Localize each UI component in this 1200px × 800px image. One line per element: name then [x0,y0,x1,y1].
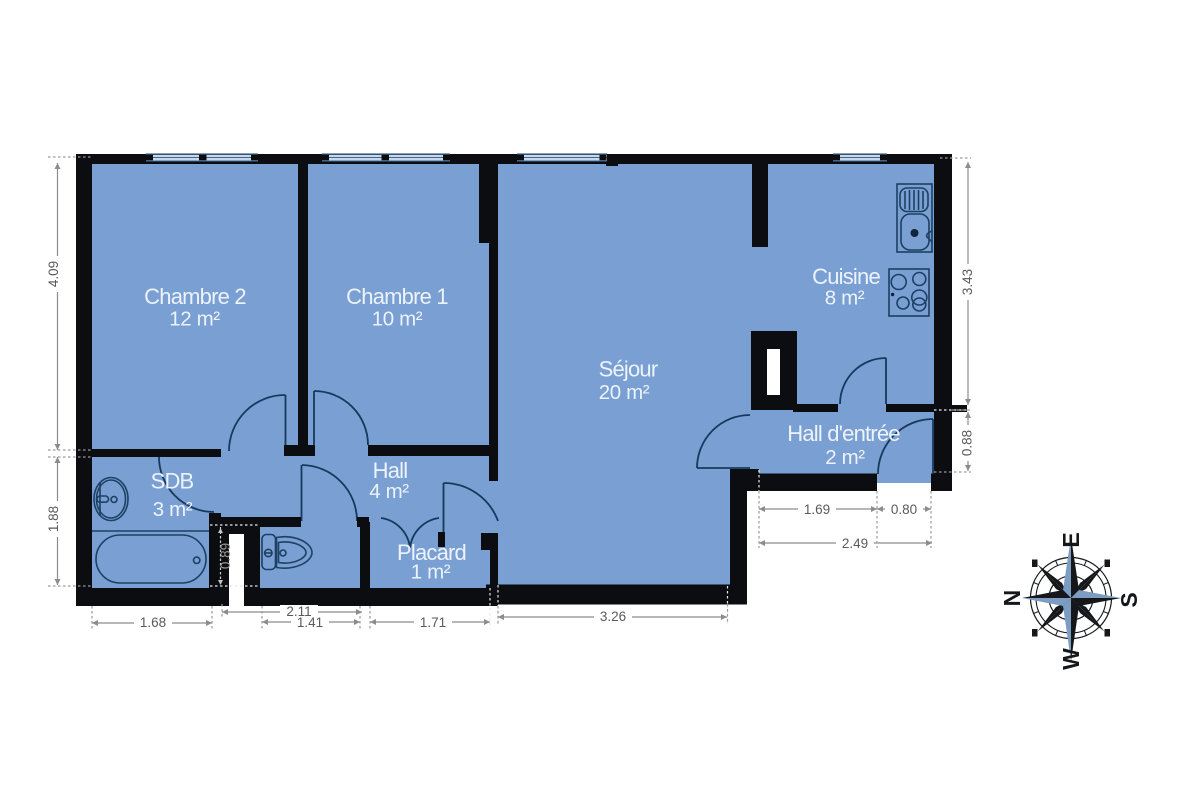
svg-text:1.68: 1.68 [140,615,166,630]
svg-text:S: S [1116,592,1142,607]
svg-text:0.88: 0.88 [960,430,975,456]
svg-text:Chambre 2: Chambre 2 [144,284,246,309]
svg-text:SDB: SDB [151,469,194,494]
svg-text:8 m²: 8 m² [825,287,865,310]
svg-text:E: E [1058,532,1084,547]
svg-text:1 m²: 1 m² [411,561,451,584]
svg-text:0.80: 0.80 [891,502,917,517]
svg-text:2.49: 2.49 [842,536,868,551]
svg-text:4.09: 4.09 [46,261,61,287]
svg-text:3.26: 3.26 [600,609,626,624]
svg-text:N: N [999,590,1025,607]
svg-text:2 m²: 2 m² [825,446,865,469]
svg-text:3.43: 3.43 [960,269,975,295]
svg-text:Hall d'entrée: Hall d'entrée [787,421,900,446]
svg-text:1.71: 1.71 [420,615,446,630]
svg-text:1.69: 1.69 [804,502,830,517]
svg-text:Cuisine: Cuisine [812,264,880,289]
svg-text:Chambre 1: Chambre 1 [346,284,448,309]
svg-text:4 m²: 4 m² [369,480,409,503]
svg-text:10 m²: 10 m² [372,308,423,331]
svg-text:1.41: 1.41 [297,615,323,630]
svg-text:Séjour: Séjour [599,357,658,382]
svg-text:12 m²: 12 m² [169,308,220,331]
svg-text:W: W [1058,648,1084,670]
svg-text:1.88: 1.88 [46,506,61,532]
svg-text:0.89: 0.89 [218,543,233,569]
svg-text:3 m²: 3 m² [153,498,193,521]
svg-text:20 m²: 20 m² [599,381,650,404]
